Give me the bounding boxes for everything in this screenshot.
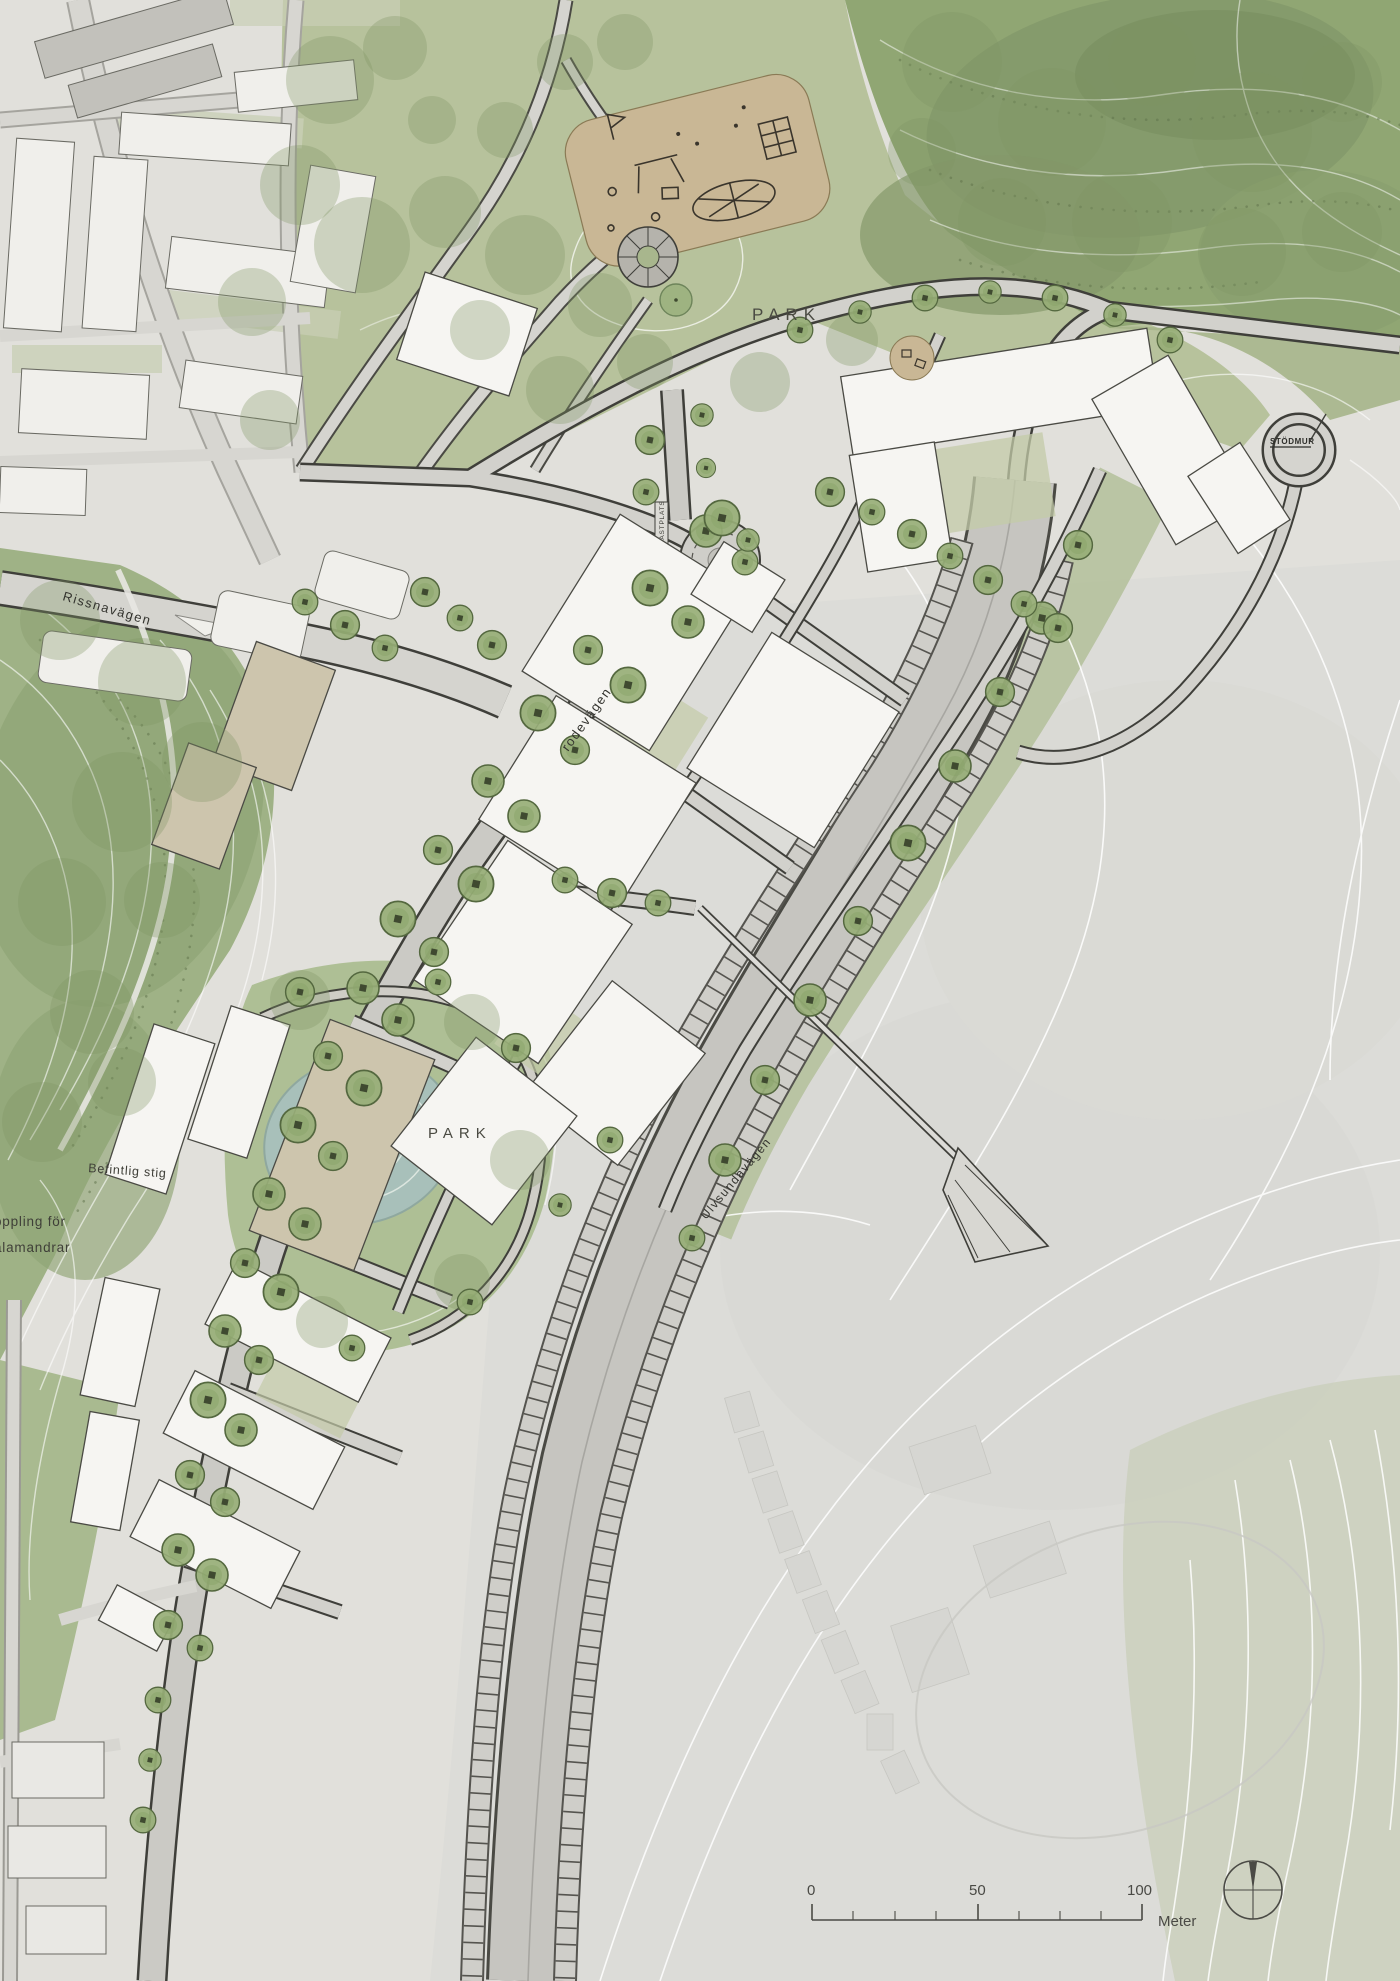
picnic-spot	[890, 336, 934, 380]
park-top-label: PARK	[752, 305, 821, 324]
scale-tick-0: 0	[807, 1882, 815, 1899]
koppling-label-line2: alamandrar	[0, 1240, 70, 1255]
scale-tick-100: 100	[1127, 1882, 1152, 1899]
park-pond-label: PARK	[428, 1125, 492, 1142]
north-compass	[1224, 1861, 1282, 1919]
terrain-base	[0, 0, 1400, 1981]
lawn-circle	[660, 284, 692, 316]
lastplats-label: LASTPLATS	[659, 500, 666, 544]
lookout-mound	[618, 227, 678, 287]
scale-tick-50: 50	[969, 1882, 986, 1899]
scale-unit-label: Meter	[1158, 1913, 1196, 1930]
site-plan-map: STÖDMUR	[0, 0, 1400, 1981]
koppling-label-line1: oppling för	[0, 1214, 66, 1229]
culdesac-loop: STÖDMUR	[1268, 414, 1330, 481]
stodmur-label: STÖDMUR	[1270, 437, 1315, 446]
